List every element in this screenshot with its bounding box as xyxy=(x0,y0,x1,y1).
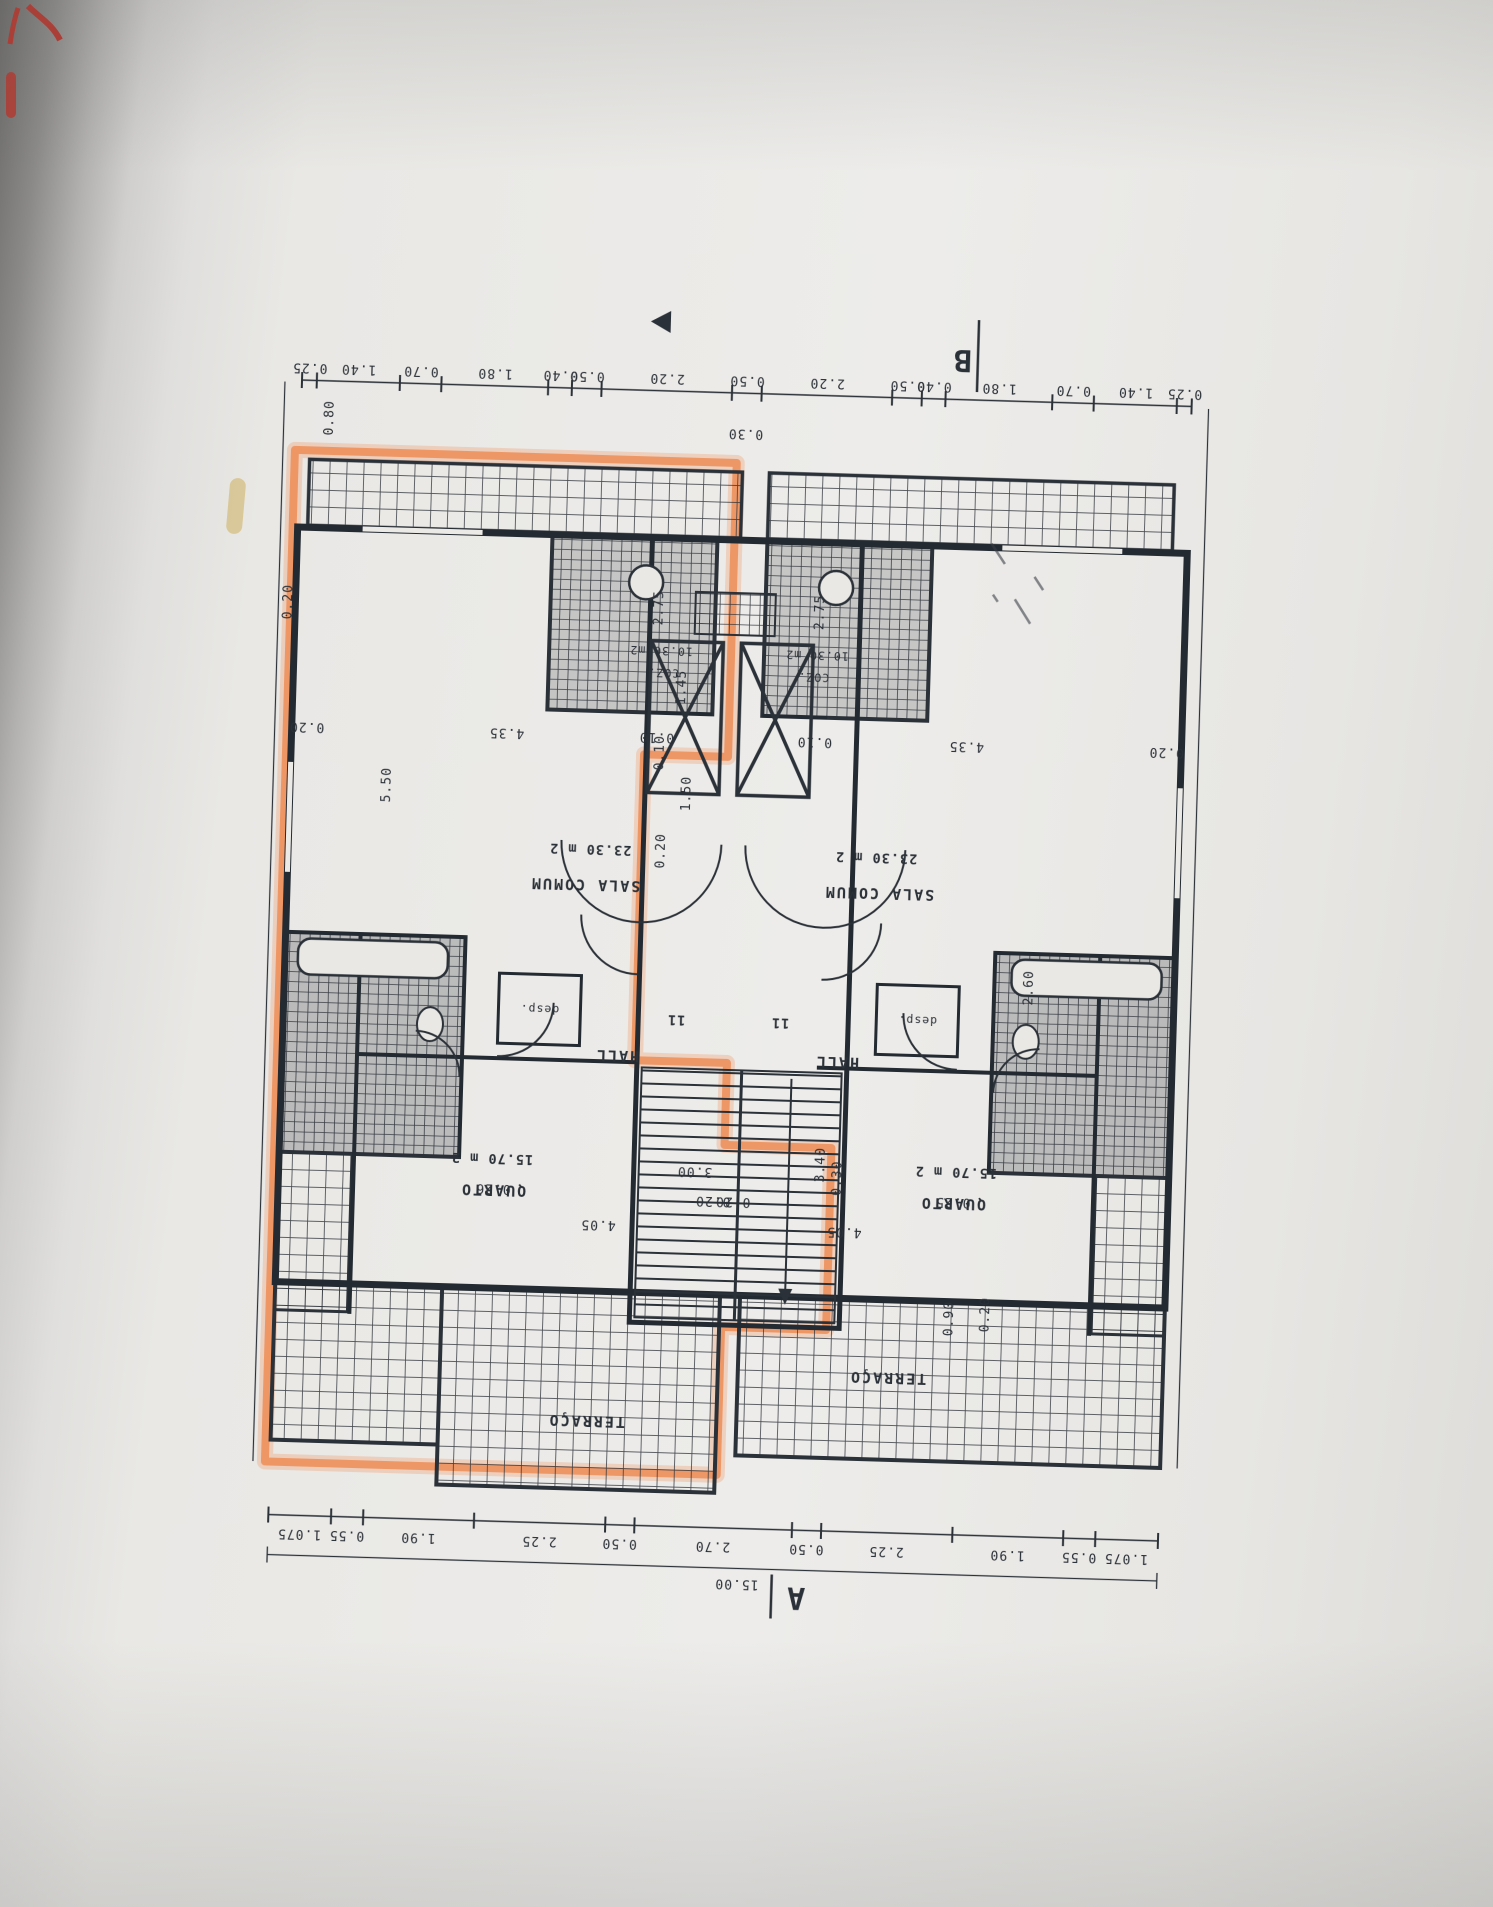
dimension-label: 2.70 xyxy=(695,1538,731,1554)
section-marker-b: B xyxy=(953,342,972,378)
direction-arrow-icon xyxy=(651,310,672,333)
dimension-label: 0.50 xyxy=(788,1540,824,1556)
dimension-label: 1.80 xyxy=(981,380,1017,396)
dimension-label: 2.25 xyxy=(521,1533,557,1549)
unit-b-coz-label: COZ. xyxy=(797,670,829,685)
yellow-smudge xyxy=(226,477,247,534)
dimension-label: 0.10 xyxy=(652,735,668,771)
dimension-label: 1.075 xyxy=(1104,1550,1149,1566)
dimension-label: 0.70 xyxy=(403,363,439,379)
photographed-floor-plan-page: B A 15.00 SALA COMUM 23.30 m 2 QUARTO 15… xyxy=(0,0,1493,1907)
dimension-label: 0.20 xyxy=(280,584,296,620)
ink-smudges xyxy=(989,544,1044,625)
dimension-label: 1.90 xyxy=(400,1529,436,1545)
dimension-label: 4.35 xyxy=(949,738,985,754)
dimension-label: 0.25 xyxy=(935,1194,971,1210)
unit-a-hall-number: 11 xyxy=(667,1011,686,1028)
unit-b-sala-comum-area: 23.30 m 2 xyxy=(835,848,918,866)
dimension-label: 0.80 xyxy=(322,400,338,436)
dimension-label: 2.20 xyxy=(649,370,685,386)
dimension-label: 0.25 xyxy=(292,359,328,375)
unit-b-quarto-area: 15.70 m 2 xyxy=(915,1163,998,1181)
dimension-label: 2.75 xyxy=(812,595,828,631)
dimension-label: 0.50 xyxy=(601,1535,637,1551)
dimension-label: 0.70 xyxy=(1056,382,1092,398)
dimension-label: 0.20 xyxy=(1148,744,1184,760)
dimension-label: 1.90 xyxy=(989,1546,1025,1562)
dimension-label: 0.55 xyxy=(1061,1549,1097,1565)
dimension-label: 0.50 xyxy=(889,377,925,393)
overall-dimension: 15.00 xyxy=(714,1575,759,1591)
unit-a-quarto-area: 15.70 m 2 xyxy=(451,1149,534,1167)
dimension-label: 0.40 xyxy=(543,367,579,383)
dimension-label: 0.90 xyxy=(941,1301,957,1337)
unit-a-sala-comum-area: 23.30 m 2 xyxy=(549,840,632,858)
floor-plan: B A 15.00 SALA COMUM 23.30 m 2 QUARTO 15… xyxy=(240,281,1219,1638)
unit-a-desp-label: desp. xyxy=(519,1002,559,1017)
dimension-label: 0.20 xyxy=(653,833,669,869)
dimension-label: 3.00 xyxy=(677,1163,713,1179)
dimension-label: 0.30 xyxy=(830,1160,846,1196)
unit-b-hall-label: HALL xyxy=(815,1053,860,1072)
dimension-label: 1.50 xyxy=(679,776,695,812)
unit-a-sala-comum-label: SALA COMUM xyxy=(530,874,641,895)
dimension-label: 1.40 xyxy=(1118,384,1154,400)
dimension-label: 0.10 xyxy=(797,733,833,749)
section-marker-a: A xyxy=(787,1579,806,1615)
dimension-label: 0.25 xyxy=(1167,385,1203,401)
dimension-label: 4.05 xyxy=(580,1216,616,1232)
dimension-label: 1.80 xyxy=(477,365,513,381)
dimension-label: 4.05 xyxy=(826,1223,862,1239)
unit-a-coz-area: 10.30 m2 xyxy=(629,643,693,659)
dimension-label: 2.20 xyxy=(809,375,845,391)
dimension-label: 2.25 xyxy=(868,1543,904,1559)
dimension-label: 3.40 xyxy=(813,1147,829,1183)
dimension-label: 2.60 xyxy=(1021,970,1037,1006)
unit-a-hall-label: HALL xyxy=(595,1046,640,1065)
dimension-label: 0.55 xyxy=(329,1527,365,1543)
dimension-label: 2.75 xyxy=(651,590,667,626)
floor-plan-drawing xyxy=(240,281,1219,1638)
dimension-label: 5.50 xyxy=(379,767,395,803)
dimension-label: 4.35 xyxy=(489,724,525,740)
unit-b-hall-number: 11 xyxy=(771,1014,790,1031)
unit-b-sala-comum-label: SALA COMUM xyxy=(824,883,935,904)
dimension-label: 0.26 xyxy=(475,1180,511,1196)
dimension-label: 0.20 xyxy=(289,718,325,734)
dimension-label: 0.30 xyxy=(728,425,764,441)
unit-b-terraco-label: TERRAÇO xyxy=(849,1368,927,1388)
dimension-label: 1.40 xyxy=(341,361,377,377)
dimension-label: 1.45 xyxy=(674,670,690,706)
dimension-label: 0.20 xyxy=(978,1297,994,1333)
dimension-label: 1.075 xyxy=(277,1525,322,1541)
dimension-label: 0.50 xyxy=(729,372,765,388)
dimension-label: 0.20 xyxy=(695,1193,731,1209)
unit-b-coz-area: 10.30 m2 xyxy=(785,648,849,664)
unit-b-desp-label: desp. xyxy=(897,1013,937,1028)
unit-a-terraco-label: TERRAÇO xyxy=(547,1411,625,1431)
red-pen-marks xyxy=(0,0,80,140)
